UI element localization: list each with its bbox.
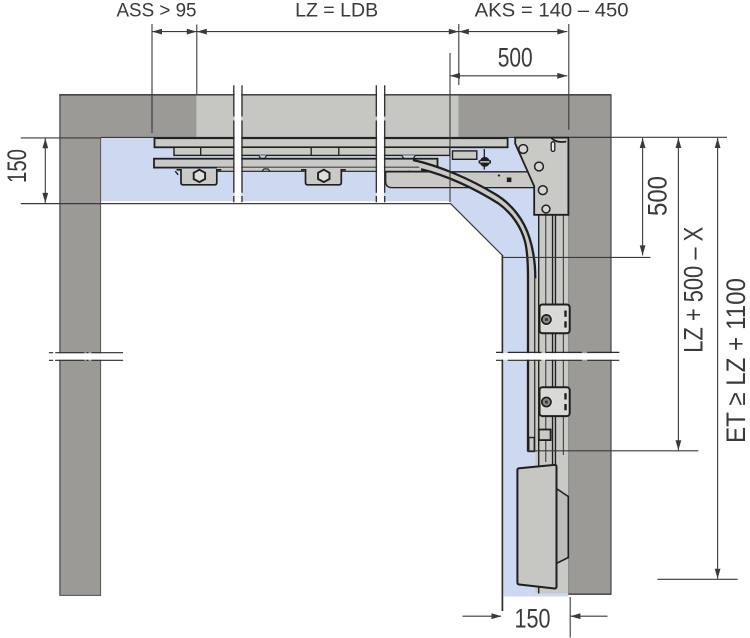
svg-text:AKS = 140 – 450: AKS = 140 – 450 xyxy=(475,0,629,21)
svg-text:ASS > 95: ASS > 95 xyxy=(117,0,197,21)
svg-text:500: 500 xyxy=(642,176,672,216)
svg-text:150: 150 xyxy=(515,603,551,633)
svg-text:500: 500 xyxy=(498,42,533,72)
svg-text:LZ + 500 – X: LZ + 500 – X xyxy=(679,227,709,353)
svg-text:150: 150 xyxy=(2,149,32,183)
svg-text:ET ≥ LZ + 1100: ET ≥ LZ + 1100 xyxy=(721,278,750,443)
svg-text:LZ = LDB: LZ = LDB xyxy=(295,0,378,21)
